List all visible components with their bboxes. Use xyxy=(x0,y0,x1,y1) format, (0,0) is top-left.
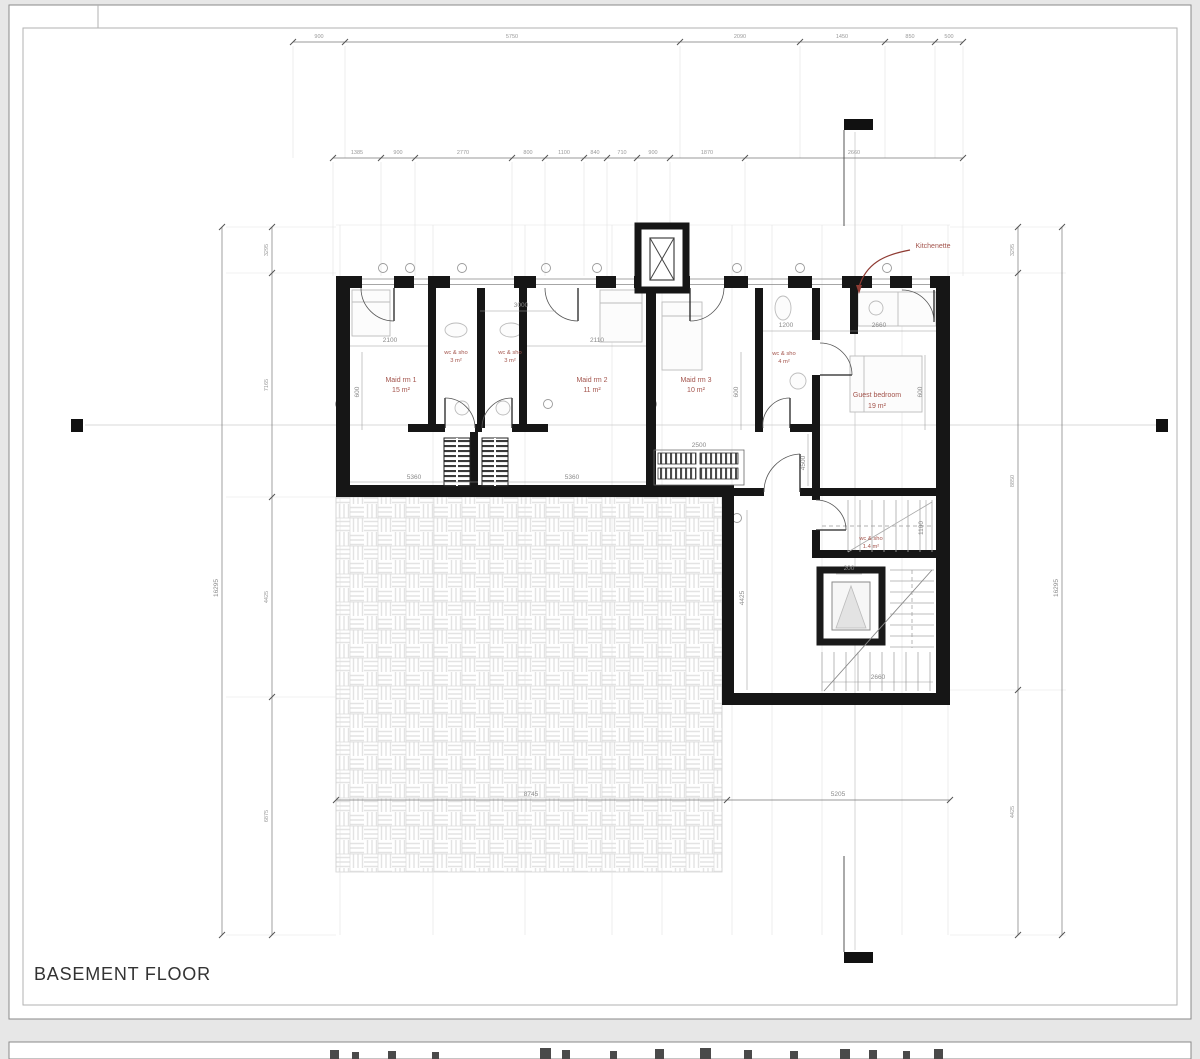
shower-wc2-icon xyxy=(496,401,510,415)
axis-marker-right-icon xyxy=(1156,419,1168,432)
sheet-title: BASEMENT FLOOR xyxy=(34,964,211,984)
dim-label: 2660 xyxy=(848,150,860,156)
svg-text:3 m²: 3 m² xyxy=(504,358,516,364)
dim-label: 1385 xyxy=(351,150,363,156)
dim-label: 900 xyxy=(393,150,402,156)
shower-wc3-icon xyxy=(790,373,806,389)
svg-text:19 m²: 19 m² xyxy=(868,403,887,410)
dim-label: 2770 xyxy=(457,150,469,156)
kitchenette-label: Kitchenette xyxy=(915,243,950,250)
dim-label: 3295 xyxy=(264,244,270,256)
toilet-wc3-icon xyxy=(775,296,791,320)
svg-text:4 m²: 4 m² xyxy=(778,359,790,365)
axis-marker-left-icon xyxy=(71,419,83,432)
dim-label: 1100 xyxy=(918,521,925,535)
dim-label: 4425 xyxy=(264,591,270,603)
svg-text:Maid rm 2: Maid rm 2 xyxy=(576,377,607,384)
dim-label: 5205 xyxy=(831,791,846,798)
sink-wc2-icon xyxy=(500,323,522,337)
svg-text:wc & sho: wc & sho xyxy=(771,351,796,357)
drawing-sheet: 900 5750 2090 1450 850 500 1385 900 2770… xyxy=(0,0,1200,1059)
dim-label: 4425 xyxy=(739,590,746,605)
dim-label: 2100 xyxy=(383,337,398,344)
dim-label: 16295 xyxy=(1053,579,1060,597)
svg-text:11 m²: 11 m² xyxy=(583,387,601,394)
dim-label: 5360 xyxy=(407,474,422,481)
svg-text:1.4 m²: 1.4 m² xyxy=(863,544,879,550)
dim-label: 900 xyxy=(648,150,657,156)
dim-label: 1200 xyxy=(779,322,794,329)
dim-label: 4425 xyxy=(1010,806,1016,818)
dim-label: 5360 xyxy=(565,474,580,481)
svg-text:Maid rm 1: Maid rm 1 xyxy=(385,377,416,384)
bed-maid3 xyxy=(662,302,702,370)
dim-label: 16295 xyxy=(213,579,220,597)
dim-label: 710 xyxy=(617,150,626,156)
shaft xyxy=(638,226,686,290)
bed-maid2 xyxy=(600,290,642,342)
sink-wc1-icon xyxy=(445,323,467,337)
dim-label: 200 xyxy=(844,565,855,572)
duct-box xyxy=(820,570,882,642)
dim-label: 3295 xyxy=(1010,244,1016,256)
section-flag-bottom-icon xyxy=(844,952,873,963)
dim-label: 2500 xyxy=(692,442,707,449)
svg-text:3 m²: 3 m² xyxy=(450,358,462,364)
dim-label: 900 xyxy=(314,34,323,40)
bed-guest xyxy=(850,356,922,412)
dim-label: 6875 xyxy=(264,810,270,822)
bed-maid1 xyxy=(352,290,390,336)
next-sheet-strip xyxy=(9,1042,1191,1059)
dim-label: 4500 xyxy=(800,455,807,470)
dim-label: 500 xyxy=(944,34,953,40)
dim-label: 1450 xyxy=(836,34,848,40)
dim-label: 3000 xyxy=(514,302,529,309)
dim-label: 1870 xyxy=(701,150,713,156)
hatched-court-area xyxy=(336,497,722,872)
svg-text:wc & sho: wc & sho xyxy=(443,350,468,356)
dim-label: 600 xyxy=(917,386,924,397)
dim-label: 5750 xyxy=(506,34,518,40)
floor-plan-svg: 900 5750 2090 1450 850 500 1385 900 2770… xyxy=(0,0,1200,1059)
svg-text:wc & sho: wc & sho xyxy=(497,350,522,356)
svg-text:wc & sho: wc & sho xyxy=(858,536,883,542)
svg-text:15 m²: 15 m² xyxy=(392,387,411,394)
dim-label: 8850 xyxy=(1010,475,1016,487)
dim-label: 850 xyxy=(905,34,914,40)
dim-label: 8745 xyxy=(524,791,539,798)
dim-label: 2660 xyxy=(871,674,886,681)
dim-label: 2090 xyxy=(734,34,746,40)
dim-label: 7165 xyxy=(264,379,270,391)
dim-label: 2660 xyxy=(872,322,887,329)
dim-label: 1100 xyxy=(558,150,570,156)
dim-label: 840 xyxy=(590,150,599,156)
svg-text:Maid rm 3: Maid rm 3 xyxy=(680,377,711,384)
dim-label: 800 xyxy=(523,150,532,156)
dim-label: 2110 xyxy=(590,337,604,344)
dim-label: 600 xyxy=(354,386,361,397)
section-flag-top-icon xyxy=(844,119,873,130)
dim-label: 600 xyxy=(733,386,740,397)
svg-text:Guest bedroom: Guest bedroom xyxy=(853,392,901,399)
svg-text:10 m²: 10 m² xyxy=(687,387,706,394)
kitchen-sink-icon xyxy=(869,301,883,315)
